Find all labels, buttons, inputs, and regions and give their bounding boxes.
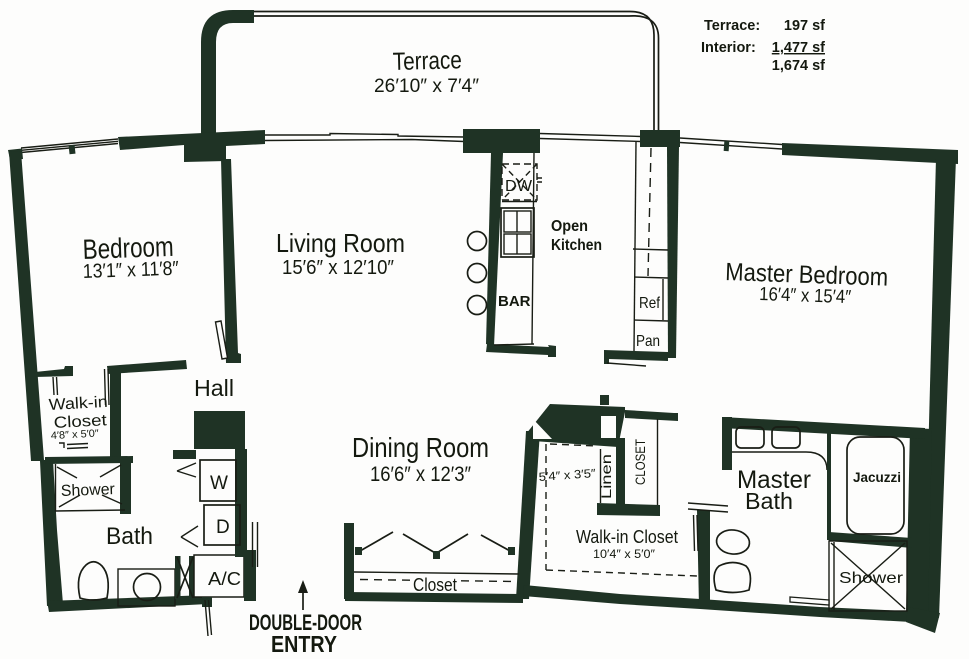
svg-text:Kitchen: Kitchen (551, 237, 602, 254)
svg-text:Shower: Shower (839, 570, 904, 587)
svg-text:W: W (210, 473, 228, 494)
svg-text:Bath: Bath (106, 523, 153, 550)
svg-text:CLOSET: CLOSET (632, 439, 648, 485)
svg-text:Shower: Shower (61, 481, 116, 500)
svg-text:Jacuzzi: Jacuzzi (853, 469, 901, 485)
svg-text:26′10″ x 7′4″: 26′10″ x 7′4″ (374, 76, 479, 97)
svg-text:15′6″ x 12′10″: 15′6″ x 12′10″ (282, 257, 394, 279)
svg-text:Walk-in: Walk-in (48, 394, 108, 414)
svg-text:1,674 sf: 1,674 sf (772, 58, 825, 74)
svg-text:BAR: BAR (498, 293, 531, 310)
svg-text:4′8″ x 5′0″: 4′8″ x 5′0″ (51, 427, 100, 442)
svg-text:Open: Open (551, 218, 588, 235)
svg-text:197 sf: 197 sf (784, 18, 825, 34)
svg-text:D: D (216, 517, 230, 538)
svg-text:Hall: Hall (194, 375, 234, 401)
svg-text:1,477 sf: 1,477 sf (772, 40, 825, 56)
svg-text:13′1″ x 11′8″: 13′1″ x 11′8″ (82, 258, 179, 283)
svg-text:A/C: A/C (208, 569, 241, 589)
svg-text:Ref: Ref (639, 295, 660, 312)
svg-text:Bath: Bath (745, 488, 793, 514)
svg-text:Pan: Pan (636, 333, 660, 350)
svg-text:5′4″ x 3′5″: 5′4″ x 3′5″ (538, 466, 597, 484)
svg-text:Closet: Closet (413, 575, 457, 595)
svg-text:ENTRY: ENTRY (271, 631, 337, 657)
svg-text:Walk-in Closet: Walk-in Closet (576, 527, 678, 547)
svg-text:Linen: Linen (599, 454, 614, 499)
svg-text:16′6″ x 12′3″: 16′6″ x 12′3″ (370, 463, 471, 486)
svg-text:Terrace:: Terrace: (704, 18, 760, 34)
svg-text:10′4″ x 5′0″: 10′4″ x 5′0″ (593, 547, 656, 561)
svg-text:16′4″ x 15′4″: 16′4″ x 15′4″ (759, 284, 852, 308)
svg-text:Dining Room: Dining Room (352, 432, 489, 463)
svg-text:Living Room: Living Room (276, 228, 405, 258)
svg-text:Terrace: Terrace (392, 46, 462, 76)
svg-text:DW: DW (505, 178, 533, 195)
svg-text:Interior:: Interior: (701, 40, 756, 56)
